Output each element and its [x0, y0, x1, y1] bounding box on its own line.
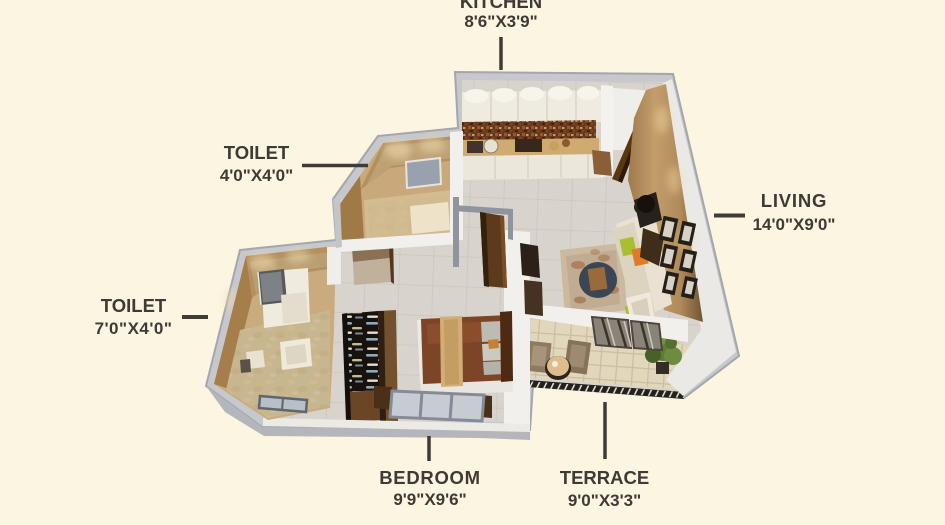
- svg-text:TERRACE: TERRACE: [560, 467, 649, 488]
- svg-text:8'6"X3'9": 8'6"X3'9": [464, 12, 537, 31]
- svg-text:9'9"X9'6": 9'9"X9'6": [393, 490, 466, 509]
- svg-text:7'0"X4'0": 7'0"X4'0": [95, 319, 173, 338]
- svg-text:TOILET: TOILET: [101, 295, 167, 316]
- svg-text:LIVING: LIVING: [761, 190, 827, 211]
- svg-text:TOILET: TOILET: [224, 142, 290, 163]
- svg-text:BEDROOM: BEDROOM: [379, 467, 481, 488]
- svg-text:KITCHEN: KITCHEN: [460, 0, 542, 12]
- svg-text:14'0"X9'0": 14'0"X9'0": [753, 215, 836, 234]
- svg-text:4'0"X4'0": 4'0"X4'0": [220, 166, 293, 185]
- svg-text:9'0"X3'3": 9'0"X3'3": [568, 491, 641, 510]
